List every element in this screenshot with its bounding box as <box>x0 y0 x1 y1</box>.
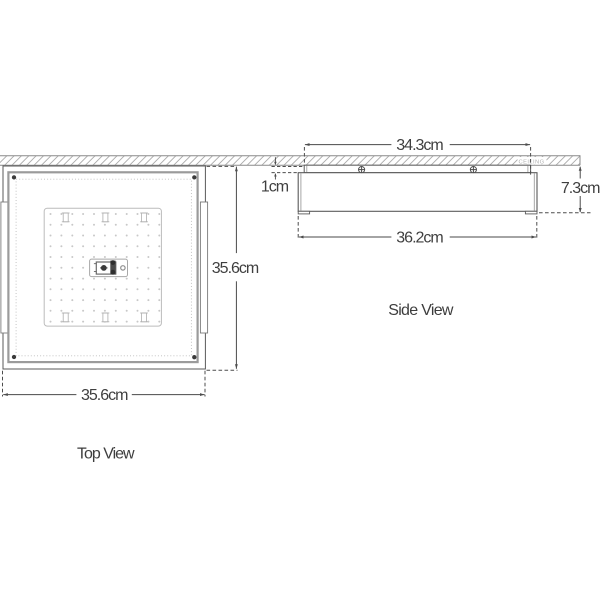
svg-text:1cm: 1cm <box>261 179 289 196</box>
svg-text:Top View: Top View <box>77 445 135 462</box>
svg-text:7.3cm: 7.3cm <box>561 180 600 197</box>
svg-text:35.6cm: 35.6cm <box>81 387 128 404</box>
svg-text:Side View: Side View <box>388 302 454 319</box>
svg-text:35.6cm: 35.6cm <box>212 260 259 277</box>
svg-text:36.2cm: 36.2cm <box>396 229 443 246</box>
svg-text:34.3cm: 34.3cm <box>396 137 443 154</box>
